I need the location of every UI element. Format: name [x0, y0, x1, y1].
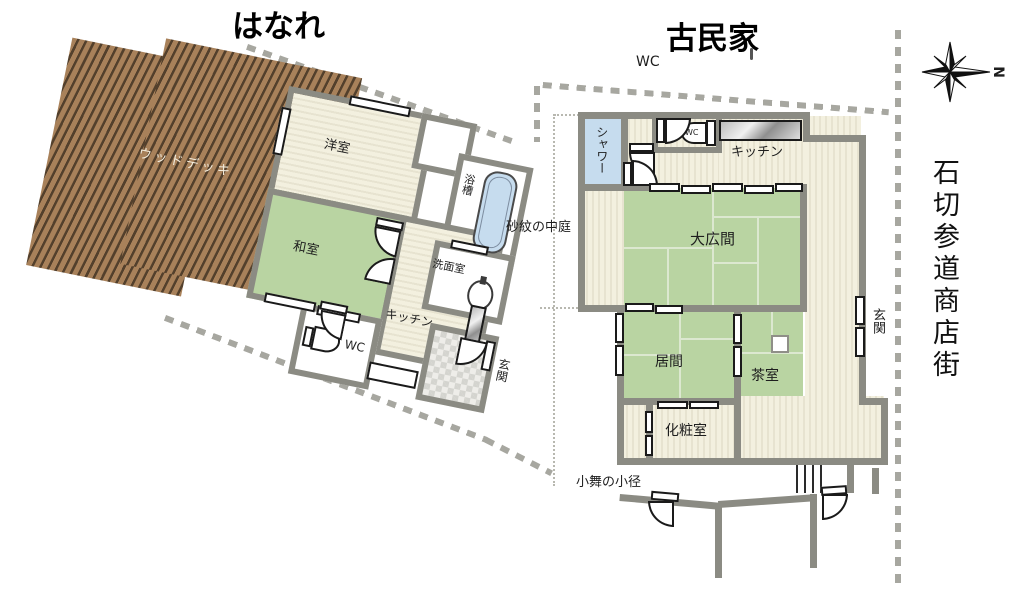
path-wall [715, 504, 722, 578]
tea-room-label: 茶室 [751, 368, 779, 384]
door-leaf [629, 143, 654, 152]
wc-outside-label: WC [636, 54, 660, 70]
gate-slat [812, 465, 814, 493]
kitchen-label: キッチン [731, 146, 783, 161]
path-wall [718, 494, 814, 508]
hanare-building: ウッドデッキ 洋室 和室 浴槽 洗面室 [0, 20, 586, 535]
door-leaf [656, 118, 665, 143]
sliding-door [733, 314, 742, 344]
entrance-label: 玄関 [493, 357, 511, 383]
wall [800, 184, 807, 312]
sliding-door [733, 346, 742, 377]
toilet-icon [706, 120, 716, 146]
boundary-line [543, 82, 889, 115]
door-swing [822, 494, 848, 520]
sliding-door [657, 401, 688, 409]
sliding-door [712, 183, 743, 192]
sliding-door [689, 401, 719, 409]
entrance-label: 玄関 [869, 308, 884, 334]
shower-label: シャワー [594, 126, 608, 174]
wall [803, 135, 866, 142]
floor-plan: はなれ 古民家 WC 石切参道商店街 N [0, 0, 1024, 592]
boundary-line [895, 30, 901, 590]
path-wall [810, 494, 817, 568]
tatami-seam [679, 338, 737, 340]
path-wall [847, 465, 854, 493]
tatami-seam [667, 247, 669, 308]
sliding-door [855, 327, 865, 357]
courtyard-dotted-line [554, 114, 579, 116]
sliding-door [655, 305, 683, 314]
hearth [771, 335, 789, 353]
west-veranda [582, 188, 628, 308]
gate-slat [796, 465, 798, 493]
tatami-seam [712, 262, 757, 264]
sliding-door [744, 185, 774, 194]
sliding-door [855, 296, 865, 325]
compass-icon: N [912, 36, 1012, 108]
sliding-door [775, 183, 803, 192]
powder-room-label: 化粧室 [665, 423, 707, 439]
kominka-title: 古民家 [666, 22, 759, 58]
sliding-door [681, 185, 711, 194]
sliding-door [645, 435, 653, 456]
great-hall-label: 大広間 [690, 231, 735, 248]
path-wall [872, 468, 879, 494]
sliding-door [645, 411, 653, 433]
sliding-door [615, 313, 624, 343]
wall [617, 458, 888, 465]
entrance-step [366, 361, 419, 389]
wall [881, 398, 888, 465]
gate-slat [804, 465, 806, 493]
wall [578, 112, 585, 312]
door-leaf [623, 162, 632, 186]
door-swing [648, 501, 674, 527]
compass-n-label: N [990, 66, 1006, 78]
courtyard-label: 砂紋の中庭 [506, 221, 571, 236]
living-label: 居間 [655, 354, 683, 370]
tatami-seam [757, 216, 759, 308]
wall [578, 112, 810, 119]
sliding-door [649, 183, 680, 192]
hanare-title: はなれ [232, 10, 325, 46]
path-label: 小舞の小径 [576, 476, 641, 491]
sliding-door [625, 303, 654, 312]
street-label: 石切参道商店街 [928, 158, 959, 382]
sliding-door [615, 345, 624, 376]
wall [859, 135, 866, 405]
wall [652, 147, 720, 153]
lower-hall [739, 396, 884, 462]
small-mark-icon [750, 48, 753, 60]
kitchen-counter [719, 120, 802, 141]
